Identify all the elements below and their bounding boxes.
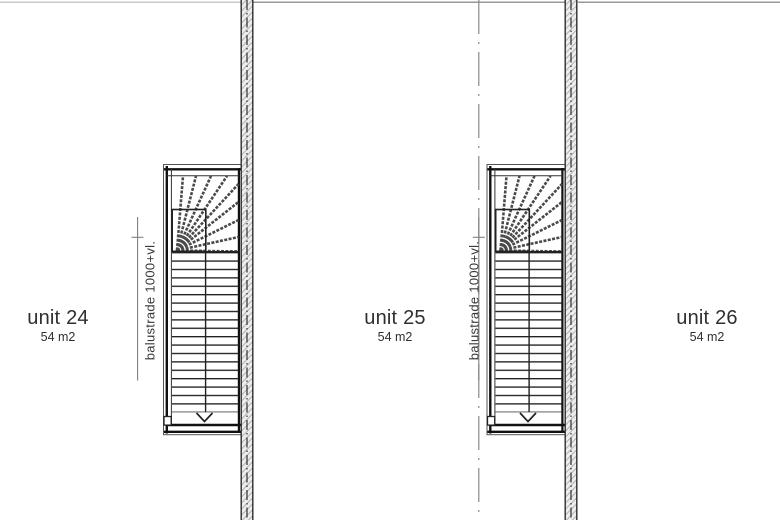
unit-name: unit 25	[325, 308, 465, 329]
unit-26-label: unit 26 54 m2	[637, 308, 777, 345]
party-wall-1	[241, 0, 254, 520]
staircase-unit-25	[487, 165, 575, 435]
balustrade-annotation-2: balustrade 1000+vl.	[467, 221, 482, 381]
unit-25-label: unit 25 54 m2	[325, 308, 465, 345]
floor-plan: balustrade 1000+vl. balustrade 1000+vl. …	[0, 0, 780, 520]
unit-area: 54 m2	[325, 330, 465, 345]
party-wall-2	[565, 0, 578, 520]
staircase-unit-24	[164, 165, 252, 435]
unit-area: 54 m2	[637, 330, 777, 345]
floor-plan-drawing	[0, 0, 780, 520]
unit-name: unit 26	[637, 308, 777, 329]
balustrade-annotation-1: balustrade 1000+vl.	[143, 221, 158, 381]
unit-24-label: unit 24 54 m2	[0, 308, 128, 345]
unit-name: unit 24	[0, 308, 128, 329]
unit-area: 54 m2	[0, 330, 128, 345]
